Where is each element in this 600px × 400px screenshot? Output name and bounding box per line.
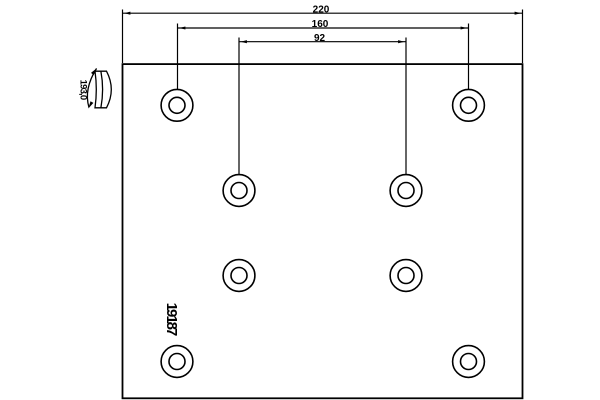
svg-text:92: 92 xyxy=(314,33,326,44)
svg-text:220: 220 xyxy=(313,4,330,15)
svg-text:193,0: 193,0 xyxy=(78,80,89,100)
svg-text:160: 160 xyxy=(312,19,329,30)
svg-text:19187: 19187 xyxy=(163,303,180,336)
